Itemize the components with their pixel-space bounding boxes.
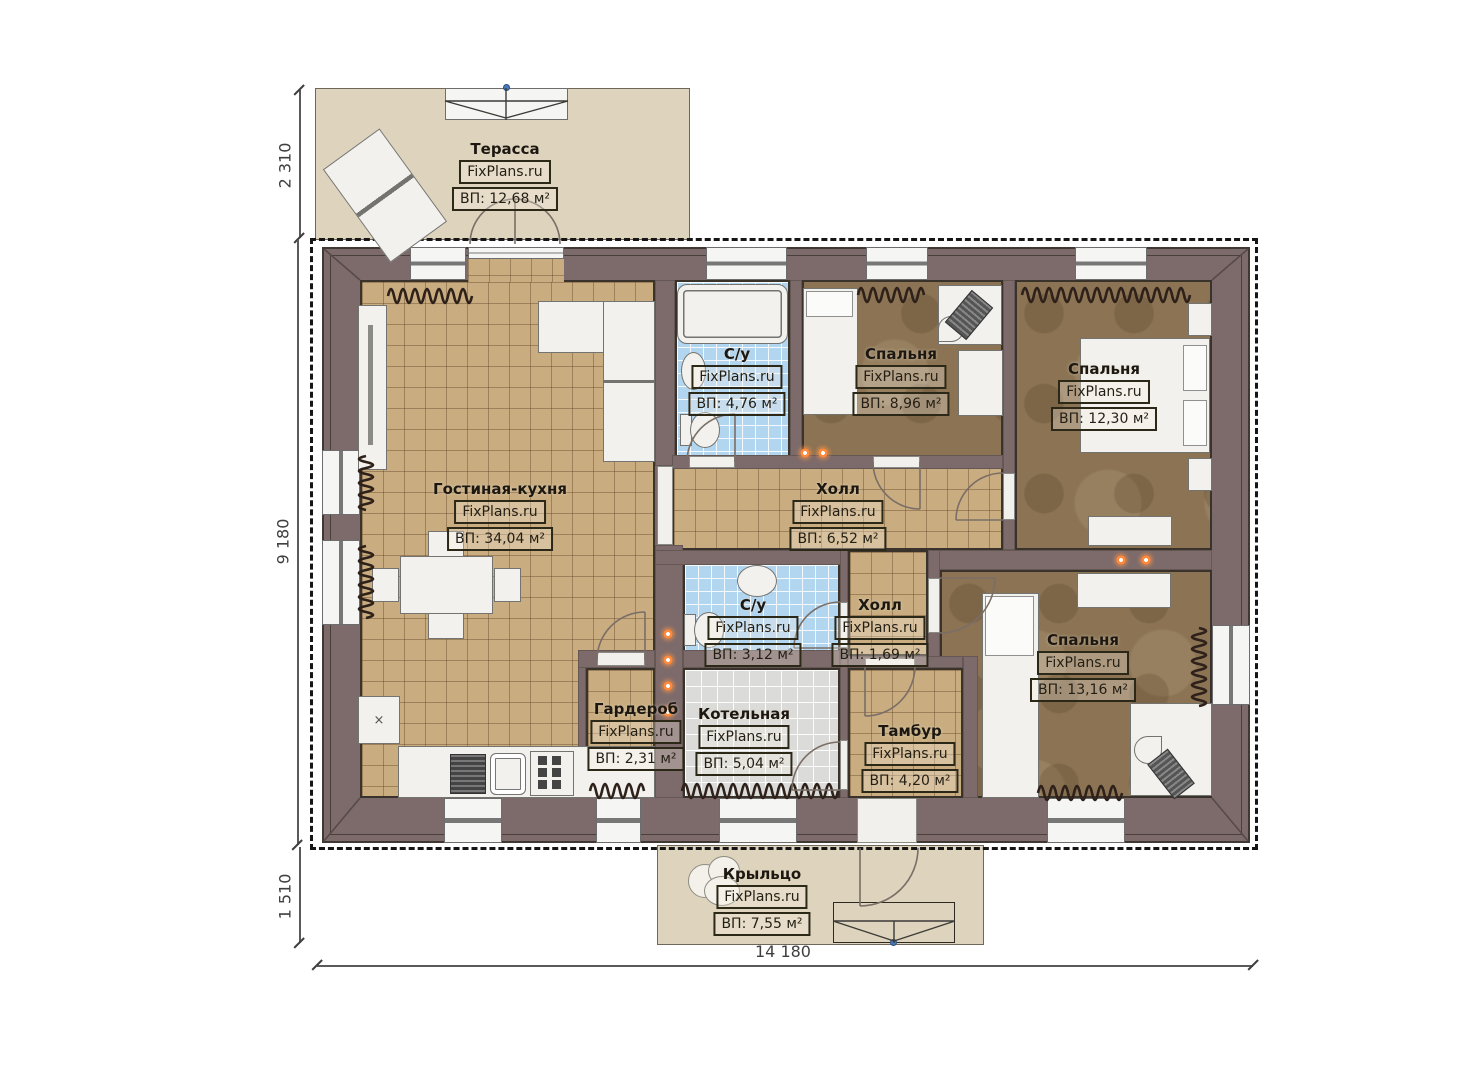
- wardrobe-cabinet: [958, 350, 1003, 416]
- room-label-tambour: Тамбур FixPlans.ru ВП: 4,20 м²: [861, 722, 958, 793]
- wall: [655, 550, 848, 565]
- room-label-hall2: Холл FixPlans.ru ВП: 1,69 м²: [831, 596, 928, 667]
- room-label-living: Гостиная-кухня FixPlans.ru ВП: 34,04 м²: [433, 480, 567, 551]
- room-area: ВП: 8,96 м²: [852, 392, 949, 416]
- wall: [790, 280, 802, 462]
- porch-steps: [833, 902, 955, 943]
- room-area: ВП: 4,20 м²: [861, 769, 958, 793]
- sink: [737, 565, 777, 597]
- room-label-boiler: Котельная FixPlans.ru ВП: 5,04 м²: [695, 705, 792, 776]
- toilet: [690, 412, 720, 448]
- dimension-terrace-depth: 2 310: [275, 143, 294, 189]
- room-label-bedroom2: Спальня FixPlans.ru ВП: 12,30 м²: [1051, 360, 1157, 431]
- room-label-wardrobe: Гардероб FixPlans.ru ВП: 2,31 м²: [587, 700, 684, 771]
- marker-dot: [890, 939, 897, 946]
- window: [410, 247, 466, 280]
- window: [596, 798, 641, 843]
- terrace-door: [468, 247, 564, 259]
- entrance-door-opening: [857, 798, 917, 843]
- room-name: Спальня: [1051, 360, 1157, 378]
- chair: [372, 568, 399, 602]
- door-boiler: [840, 740, 848, 790]
- dishwasher: [450, 754, 486, 794]
- watermark: FixPlans.ru: [707, 616, 798, 640]
- room-name: Спальня: [852, 345, 949, 363]
- ceiling-light: [663, 629, 673, 639]
- wall: [655, 280, 675, 466]
- stove-burners: [538, 756, 547, 765]
- chair: [428, 612, 464, 639]
- watermark: FixPlans.ru: [454, 500, 545, 524]
- ceiling-light: [1141, 555, 1151, 565]
- dimension-line: [317, 965, 1253, 967]
- tv: [368, 325, 373, 445]
- room-label-porch: Крыльцо FixPlans.ru ВП: 7,55 м²: [713, 865, 810, 936]
- room-area: ВП: 3,12 м²: [704, 643, 801, 667]
- dresser: [1088, 516, 1172, 546]
- window: [706, 247, 787, 280]
- room-name: Крыльцо: [713, 865, 810, 883]
- floor-plan: ×: [0, 0, 1473, 1080]
- room-label-bedroom1: Спальня FixPlans.ru ВП: 8,96 м²: [852, 345, 949, 416]
- room-name: Спальня: [1030, 631, 1136, 649]
- room-name: Гостиная-кухня: [433, 480, 567, 498]
- nightstand: [1188, 458, 1212, 491]
- bed: [803, 288, 858, 415]
- watermark: FixPlans.ru: [590, 720, 681, 744]
- watermark: FixPlans.ru: [716, 885, 807, 909]
- watermark: FixPlans.ru: [834, 616, 925, 640]
- ceiling-light: [818, 448, 828, 458]
- room-name: С/у: [704, 596, 801, 614]
- watermark: FixPlans.ru: [1037, 651, 1128, 675]
- watermark: FixPlans.ru: [864, 742, 955, 766]
- room-name: Котельная: [695, 705, 792, 723]
- dimension-porch-depth: 1 510: [275, 874, 294, 920]
- watermark: FixPlans.ru: [459, 160, 550, 184]
- watermark: FixPlans.ru: [1058, 380, 1149, 404]
- window: [1047, 798, 1125, 843]
- door-living-hall: [657, 466, 673, 545]
- window: [1212, 625, 1250, 705]
- room-area: ВП: 34,04 м²: [447, 527, 553, 551]
- wall: [963, 656, 978, 798]
- dimension-line: [299, 847, 301, 943]
- ceiling-light: [800, 448, 810, 458]
- watermark: FixPlans.ru: [855, 365, 946, 389]
- window: [322, 540, 360, 625]
- fridge: ×: [358, 696, 400, 744]
- room-area: ВП: 12,30 м²: [1051, 407, 1157, 431]
- dimension-line: [299, 90, 301, 238]
- chair: [494, 568, 521, 602]
- sofa-section: [603, 301, 655, 462]
- room-label-bath1: С/у FixPlans.ru ВП: 4,76 м²: [688, 345, 785, 416]
- room-area: ВП: 4,76 м²: [688, 392, 785, 416]
- watermark: FixPlans.ru: [691, 365, 782, 389]
- ceiling-light: [663, 681, 673, 691]
- watermark: FixPlans.ru: [792, 500, 883, 524]
- window: [1075, 247, 1147, 280]
- pillow: [985, 596, 1034, 656]
- room-name: Тамбур: [861, 722, 958, 740]
- room-name: Холл: [831, 596, 928, 614]
- ceiling-light: [663, 655, 673, 665]
- bathtub: [677, 284, 788, 344]
- window: [444, 798, 502, 843]
- nightstand: [1188, 303, 1212, 336]
- pillow: [1183, 345, 1207, 391]
- wall: [928, 550, 1212, 570]
- room-area: ВП: 13,16 м²: [1030, 678, 1136, 702]
- watermark: FixPlans.ru: [698, 725, 789, 749]
- kitchen-sink: [490, 753, 526, 795]
- window: [322, 450, 360, 515]
- room-area: ВП: 12,68 м²: [452, 187, 558, 211]
- room-name: Гардероб: [587, 700, 684, 718]
- stove: [530, 751, 574, 796]
- room-area: ВП: 6,52 м²: [789, 527, 886, 551]
- room-area: ВП: 2,31 м²: [587, 747, 684, 771]
- room-area: ВП: 1,69 м²: [831, 643, 928, 667]
- door-wardrobe: [597, 652, 645, 666]
- dimension-house-width: 14 180: [755, 942, 811, 961]
- room-label-hall1: Холл FixPlans.ru ВП: 6,52 м²: [789, 480, 886, 551]
- room-area: ВП: 5,04 м²: [695, 752, 792, 776]
- room-label-bath2: С/у FixPlans.ru ВП: 3,12 м²: [704, 596, 801, 667]
- marker-dot: [503, 84, 510, 91]
- room-area: ВП: 7,55 м²: [713, 912, 810, 936]
- window: [719, 798, 797, 843]
- wardrobe-cabinet: [1077, 573, 1171, 608]
- door-bathroom-1: [689, 456, 735, 468]
- dimension-house-depth: 9 180: [273, 519, 292, 565]
- ceiling-light: [1116, 555, 1126, 565]
- pillow: [1183, 400, 1207, 446]
- door-bedroom-3: [928, 578, 940, 633]
- room-name: Терасса: [452, 140, 558, 158]
- terrace-window: [445, 88, 568, 120]
- room-label-terrace: Терасса FixPlans.ru ВП: 12,68 м²: [452, 140, 558, 211]
- room-name: Холл: [789, 480, 886, 498]
- dining-table: [400, 556, 493, 614]
- door-bedroom-2: [1003, 473, 1015, 520]
- room-name: С/у: [688, 345, 785, 363]
- door-bedroom-1: [873, 456, 920, 468]
- dimension-line: [297, 240, 299, 845]
- room-label-bedroom3: Спальня FixPlans.ru ВП: 13,16 м²: [1030, 631, 1136, 702]
- pillow: [806, 291, 853, 317]
- window: [866, 247, 928, 280]
